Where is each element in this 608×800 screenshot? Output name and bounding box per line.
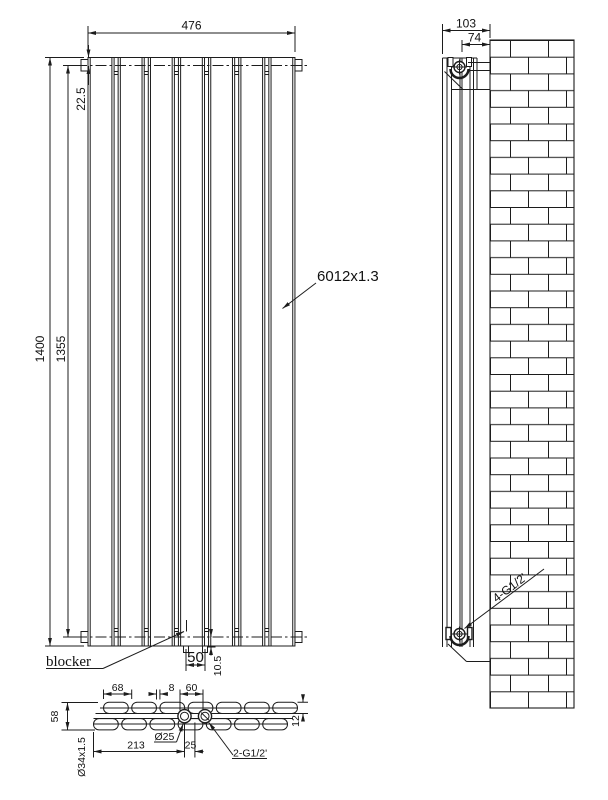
dim-top-inset-label: 22.5 bbox=[74, 87, 88, 111]
dim-port-to-center-25: 25 bbox=[185, 723, 204, 758]
dim-tube-depth-label: 12 bbox=[290, 715, 302, 727]
dim-width-476: 476 bbox=[88, 19, 295, 53]
technical-drawing-page: 476 22.5 1400 1355 50 bbox=[0, 0, 608, 800]
port-diameter-label: Ø25 bbox=[155, 731, 175, 743]
dim-port-span-label: 60 bbox=[186, 682, 198, 694]
port-diameter-leader-line bbox=[177, 724, 184, 743]
dim-panel-pitch-label: 68 bbox=[112, 682, 124, 694]
dim-stub-spacing-label: 50 bbox=[187, 649, 204, 666]
dim-pipe-to-wall-74: 74 bbox=[462, 31, 490, 53]
dim-bottom-inset-10-5: 10.5 bbox=[207, 629, 224, 676]
radiator-drawing-canvas: 476 22.5 1400 1355 50 bbox=[0, 0, 608, 800]
front-view: 476 22.5 1400 1355 50 bbox=[33, 19, 379, 677]
port-thread-leader-line bbox=[209, 723, 233, 756]
panel-spec-label: 6012x1.3 bbox=[317, 268, 379, 285]
dim-bottom-inset-label: 10.5 bbox=[212, 656, 224, 677]
dim-depth-label: 58 bbox=[49, 711, 61, 723]
dim-height-connections-label: 1355 bbox=[54, 335, 68, 362]
panel-spec-leader-line bbox=[283, 283, 317, 309]
panel-spec-callout: 6012x1.3 bbox=[283, 268, 379, 309]
dim-tube-depth-12: 12 bbox=[290, 695, 308, 727]
header-lines bbox=[94, 708, 298, 724]
dim-port-offset-label: 213 bbox=[127, 740, 145, 752]
port-circle-1 bbox=[178, 710, 191, 723]
dim-height-overall-label: 1400 bbox=[33, 335, 47, 362]
dim-height-1355: 1355 bbox=[54, 66, 76, 638]
dim-depth-103: 103 bbox=[443, 17, 491, 55]
dim-stub-spacing-50: 50 bbox=[186, 649, 205, 671]
port-thread-label: 2-G1/2' bbox=[233, 748, 267, 760]
section-tube-rows bbox=[94, 702, 298, 730]
dim-port-to-center-label: 25 bbox=[185, 740, 197, 752]
dim-port-span-60: 60 bbox=[180, 682, 203, 711]
dim-pipe-to-wall-label: 74 bbox=[468, 31, 482, 45]
dim-panel-gap-8: 8 bbox=[149, 682, 175, 700]
radiator-side-profile bbox=[443, 58, 478, 647]
blocker-label: blocker bbox=[46, 654, 91, 670]
dim-depth-overall-label: 103 bbox=[456, 17, 476, 31]
dim-width-label: 476 bbox=[181, 19, 201, 33]
bottom-wall-bracket bbox=[446, 627, 490, 662]
dim-depth-58: 58 bbox=[49, 703, 98, 731]
dim-panel-gap-label: 8 bbox=[169, 682, 175, 694]
dim-panel-pitch-68: 68 bbox=[104, 682, 132, 699]
radiator-panels bbox=[88, 58, 295, 647]
panel-connectors bbox=[114, 72, 269, 632]
header-pipe-label: Ø34x1.5 bbox=[76, 737, 88, 777]
side-view: 103 74 4-G1/2' bbox=[443, 17, 575, 709]
dim-top-inset-22-5: 22.5 bbox=[74, 45, 89, 111]
section-view: 68 8 60 58 Ø34x1.5 213 bbox=[49, 682, 308, 777]
brick-wall bbox=[490, 40, 574, 708]
